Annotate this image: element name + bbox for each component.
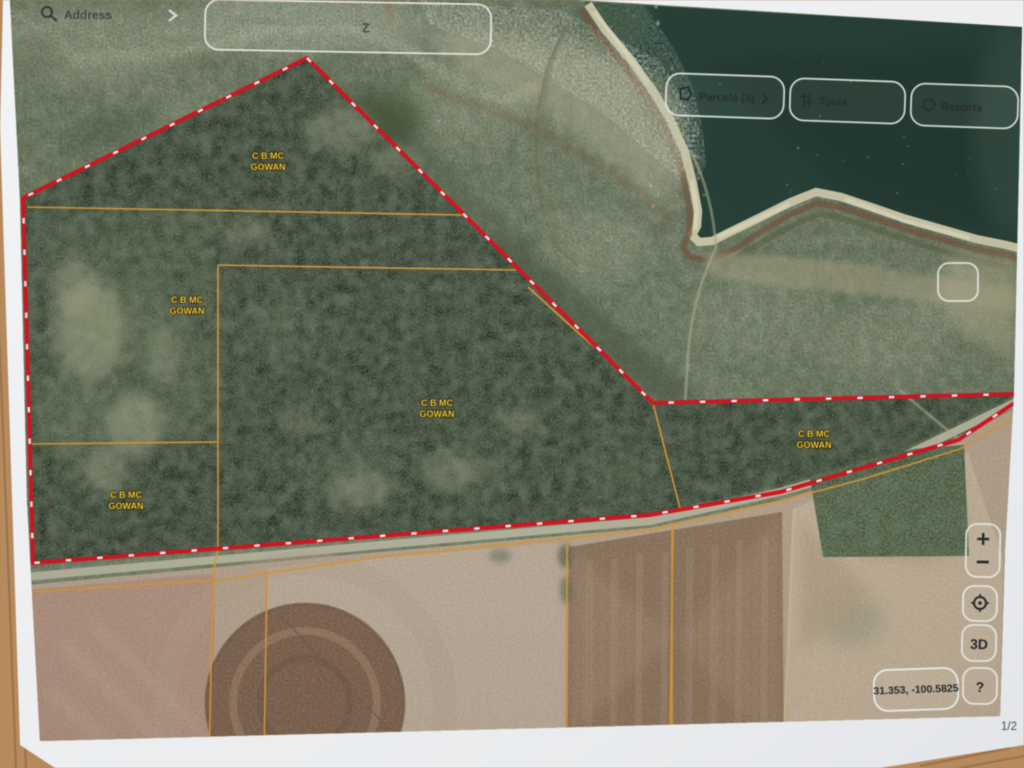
- svg-text:GOWAN: GOWAN: [109, 501, 144, 511]
- svg-text:C B MC: C B MC: [171, 295, 203, 305]
- svg-text:GOWAN: GOWAN: [251, 162, 286, 172]
- svg-text:3D: 3D: [970, 636, 988, 652]
- svg-text:C B MC: C B MC: [252, 151, 284, 161]
- svg-text:Parcels (4): Parcels (4): [699, 91, 755, 105]
- svg-text:Reports: Reports: [941, 101, 983, 114]
- svg-text:Tools: Tools: [819, 96, 848, 109]
- svg-text:C B MC: C B MC: [798, 429, 830, 439]
- svg-text:C B MC: C B MC: [110, 490, 142, 500]
- svg-text:GOWAN: GOWAN: [797, 440, 832, 450]
- svg-text:GOWAN: GOWAN: [170, 306, 205, 316]
- svg-text:GOWAN: GOWAN: [420, 409, 455, 419]
- svg-text:1/2: 1/2: [1001, 721, 1017, 733]
- svg-text:Address: Address: [64, 8, 112, 22]
- svg-text:Z: Z: [362, 20, 370, 35]
- svg-text:C B MC: C B MC: [421, 398, 453, 408]
- svg-text:?: ?: [976, 679, 985, 695]
